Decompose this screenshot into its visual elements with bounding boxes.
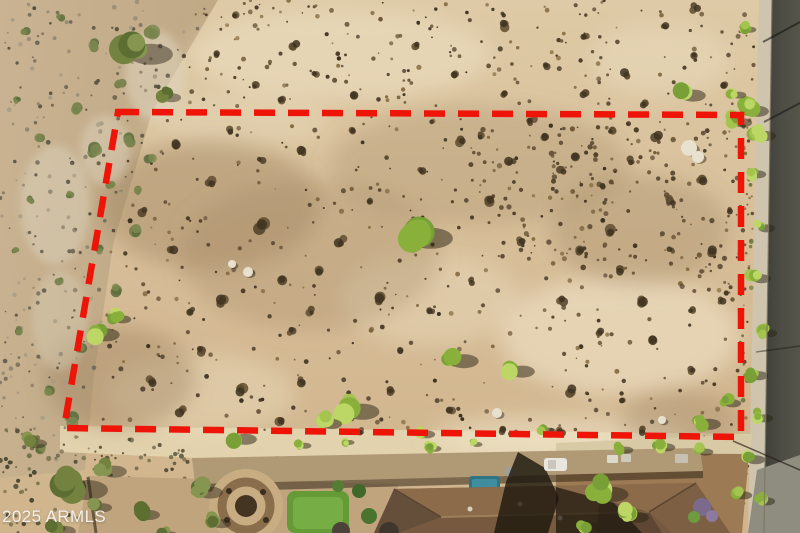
aerial-scene	[0, 0, 800, 533]
aerial-photo-desert-lot: 2025 ARMLS	[0, 0, 800, 533]
